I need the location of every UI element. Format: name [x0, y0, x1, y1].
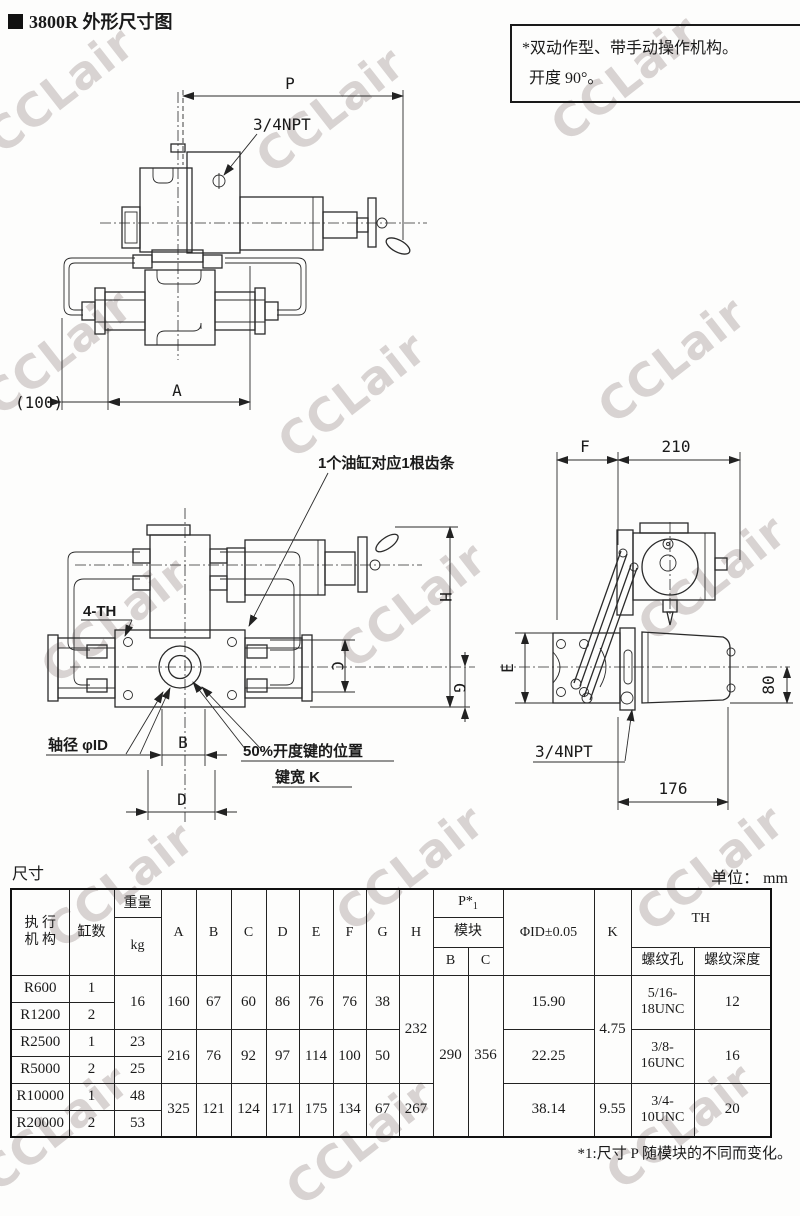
key-width-label: 键宽 K [274, 768, 320, 786]
page-title-row: 3800R 外形尺寸图 [8, 8, 173, 34]
cell-A: 325 [161, 1083, 196, 1137]
dim-label-80: 80 [759, 675, 778, 694]
drawing-front-view: 1个油缸对应1根齿条 [30, 430, 470, 830]
cell-G: 67 [366, 1083, 399, 1137]
col-header-module-C: C [468, 947, 503, 975]
side-body [571, 523, 727, 703]
watermark: CCLair [587, 286, 756, 435]
rack-callout-label: 1个油缸对应1根齿条 [318, 454, 456, 472]
th-callout-label: 4-TH [83, 603, 116, 620]
cell-id: 38.14 [503, 1083, 594, 1137]
centerlines [500, 522, 790, 667]
dim-label-B: B [178, 733, 188, 752]
note-line-1: *双动作型、带手动操作机构。 [522, 34, 794, 64]
col-header-id: ΦID±0.05 [503, 889, 594, 975]
col-header-thread-hole: 螺纹孔 [631, 947, 694, 975]
cell-cylinders: 2 [69, 1110, 114, 1137]
cell-thread-depth: 16 [694, 1029, 771, 1083]
col-header-P: P*1 [433, 889, 503, 917]
actuator-plan-body [122, 144, 412, 257]
col-header-E: E [299, 889, 333, 975]
cell-model: R1200 [11, 1002, 69, 1029]
p-label: P* [458, 894, 473, 909]
cell-model: R600 [11, 975, 69, 1002]
thread-hole-line2: 16UNC [632, 1056, 694, 1072]
cell-model: R10000 [11, 1083, 69, 1110]
thread-hole-line1: 5/16- [632, 986, 694, 1002]
dim-P: P [183, 74, 403, 240]
port-label: 3/4NPT [535, 742, 593, 761]
cell-thread-depth: 12 [694, 975, 771, 1029]
port-callout: 3/4NPT [533, 710, 632, 762]
cell-A: 160 [161, 975, 196, 1029]
drawing-side-view: F 210 [490, 430, 800, 830]
col-header-module: 模块 [433, 917, 503, 947]
note-box: *双动作型、带手动操作机构。 开度 90°。 [510, 24, 800, 103]
dim-label-H: H [436, 592, 455, 602]
cell-module-B: 290 [433, 975, 468, 1137]
key-position-label: 50%开度键的位置 [243, 742, 363, 760]
col-header-cylinders: 缸数 [69, 889, 114, 975]
centerlines [70, 508, 475, 822]
dim-label-E: E [498, 663, 517, 673]
cell-weight: 48 [114, 1083, 161, 1110]
cell-thread-hole: 3/8- 16UNC [631, 1029, 694, 1083]
cell-C: 60 [231, 975, 266, 1029]
dim-label-C: C [328, 661, 347, 671]
col-header-module-B: B [433, 947, 468, 975]
cell-B: 76 [196, 1029, 231, 1083]
col-header-D: D [266, 889, 299, 975]
cell-K: 4.75 [594, 975, 631, 1083]
table-row: R2500 1 23 216 76 92 97 114 100 50 22.25… [11, 1029, 771, 1056]
thread-hole-line2: 10UNC [632, 1110, 694, 1126]
cell-thread-hole: 3/4- 10UNC [631, 1083, 694, 1137]
cell-thread-depth: 20 [694, 1083, 771, 1137]
actuator-front-body [68, 525, 401, 685]
col-header-A: A [161, 889, 196, 975]
cell-C: 92 [231, 1029, 266, 1083]
dim-label-D: D [177, 790, 187, 809]
thread-hole-line1: 3/4- [632, 1094, 694, 1110]
col-header-C: C [231, 889, 266, 975]
cell-F: 134 [333, 1083, 366, 1137]
table-row: R600 1 16 160 67 60 86 76 76 38 232 290 … [11, 975, 771, 1002]
col-header-H: H [399, 889, 433, 975]
cell-D: 97 [266, 1029, 299, 1083]
col-header-thread-depth: 螺纹深度 [694, 947, 771, 975]
col-header-K: K [594, 889, 631, 975]
col-header-actuator: 执 行 机 构 [11, 889, 69, 975]
cell-weight: 16 [114, 975, 161, 1029]
dim-80: 80 [730, 667, 793, 703]
actuator-header-line2: 机 构 [12, 932, 69, 950]
cell-thread-hole: 5/16- 18UNC [631, 975, 694, 1029]
cell-id: 22.25 [503, 1029, 594, 1083]
shaft-callout-label: 轴径 φID [48, 736, 108, 754]
cell-weight: 25 [114, 1056, 161, 1083]
col-header-B: B [196, 889, 231, 975]
cell-weight: 23 [114, 1029, 161, 1056]
col-header-G: G [366, 889, 399, 975]
dim-B: B [140, 709, 227, 766]
dim-label-176: 176 [659, 779, 688, 798]
dim-F-210: F 210 [557, 437, 740, 620]
dim-label-100: (100) [15, 393, 63, 412]
side-lower-body [553, 628, 735, 710]
col-header-weight: 重量 [114, 889, 161, 917]
table-unit: 单位： mm [660, 864, 788, 888]
port-label: 3/4NPT [253, 115, 311, 134]
cell-K: 9.55 [594, 1083, 631, 1137]
cell-E: 76 [299, 975, 333, 1029]
cell-cylinders: 2 [69, 1056, 114, 1083]
cell-weight: 53 [114, 1110, 161, 1137]
dim-E: E [498, 633, 553, 703]
actuator-header-line1: 执 行 [12, 915, 69, 933]
cell-D: 171 [266, 1083, 299, 1137]
cell-id: 15.90 [503, 975, 594, 1029]
cell-cylinders: 1 [69, 975, 114, 1002]
cell-G: 50 [366, 1029, 399, 1083]
cell-F: 100 [333, 1029, 366, 1083]
cell-model: R20000 [11, 1110, 69, 1137]
page-title: 3800R 外形尺寸图 [29, 8, 173, 34]
cell-E: 114 [299, 1029, 333, 1083]
cell-cylinders: 1 [69, 1029, 114, 1056]
table-row: R10000 1 48 325 121 124 171 175 134 67 2… [11, 1083, 771, 1110]
cell-G: 38 [366, 975, 399, 1029]
cylinders-plan [64, 250, 306, 345]
gear-housing [48, 630, 312, 707]
dim-label-P: P [285, 74, 295, 93]
dim-G: G [450, 652, 469, 722]
cell-module-C: 356 [468, 975, 503, 1137]
cell-H: 267 [399, 1083, 433, 1137]
dim-label-G: G [450, 683, 469, 693]
cell-C: 124 [231, 1083, 266, 1137]
cell-E: 175 [299, 1083, 333, 1137]
cell-cylinders: 1 [69, 1083, 114, 1110]
cell-F: 76 [333, 975, 366, 1029]
drawing-top-view: P 3/4NPT [5, 70, 485, 430]
footnote: *1:尺寸 P 随模块的不同而变化。 [400, 1142, 792, 1163]
th-callout: 4-TH [81, 603, 132, 636]
cell-B: 67 [196, 975, 231, 1029]
cell-cylinders: 2 [69, 1002, 114, 1029]
dim-label-210: 210 [662, 437, 691, 456]
dim-D: D [126, 770, 237, 820]
note-line-2: 开度 90°。 [529, 64, 794, 94]
cell-D: 86 [266, 975, 299, 1029]
table-caption: 尺寸 [12, 860, 44, 884]
dimension-table: 执 行 机 构 缸数 重量 A B C D E F G H P*1 ΦID±0.… [10, 888, 772, 1138]
col-header-TH: TH [631, 889, 771, 947]
dim-H: H [310, 527, 470, 707]
thread-hole-line1: 3/8- [632, 1040, 694, 1056]
dim-176: 176 [618, 707, 728, 810]
cell-B: 121 [196, 1083, 231, 1137]
cell-model: R5000 [11, 1056, 69, 1083]
dim-label-A: A [172, 381, 182, 400]
cell-model: R2500 [11, 1029, 69, 1056]
p-sub: 1 [473, 901, 478, 912]
title-square-icon [8, 14, 23, 29]
thread-hole-line2: 18UNC [632, 1002, 694, 1018]
col-header-F: F [333, 889, 366, 975]
col-header-weight-unit: kg [114, 917, 161, 975]
dim-label-F: F [580, 437, 590, 456]
cell-H: 232 [399, 975, 433, 1083]
cell-A: 216 [161, 1029, 196, 1083]
